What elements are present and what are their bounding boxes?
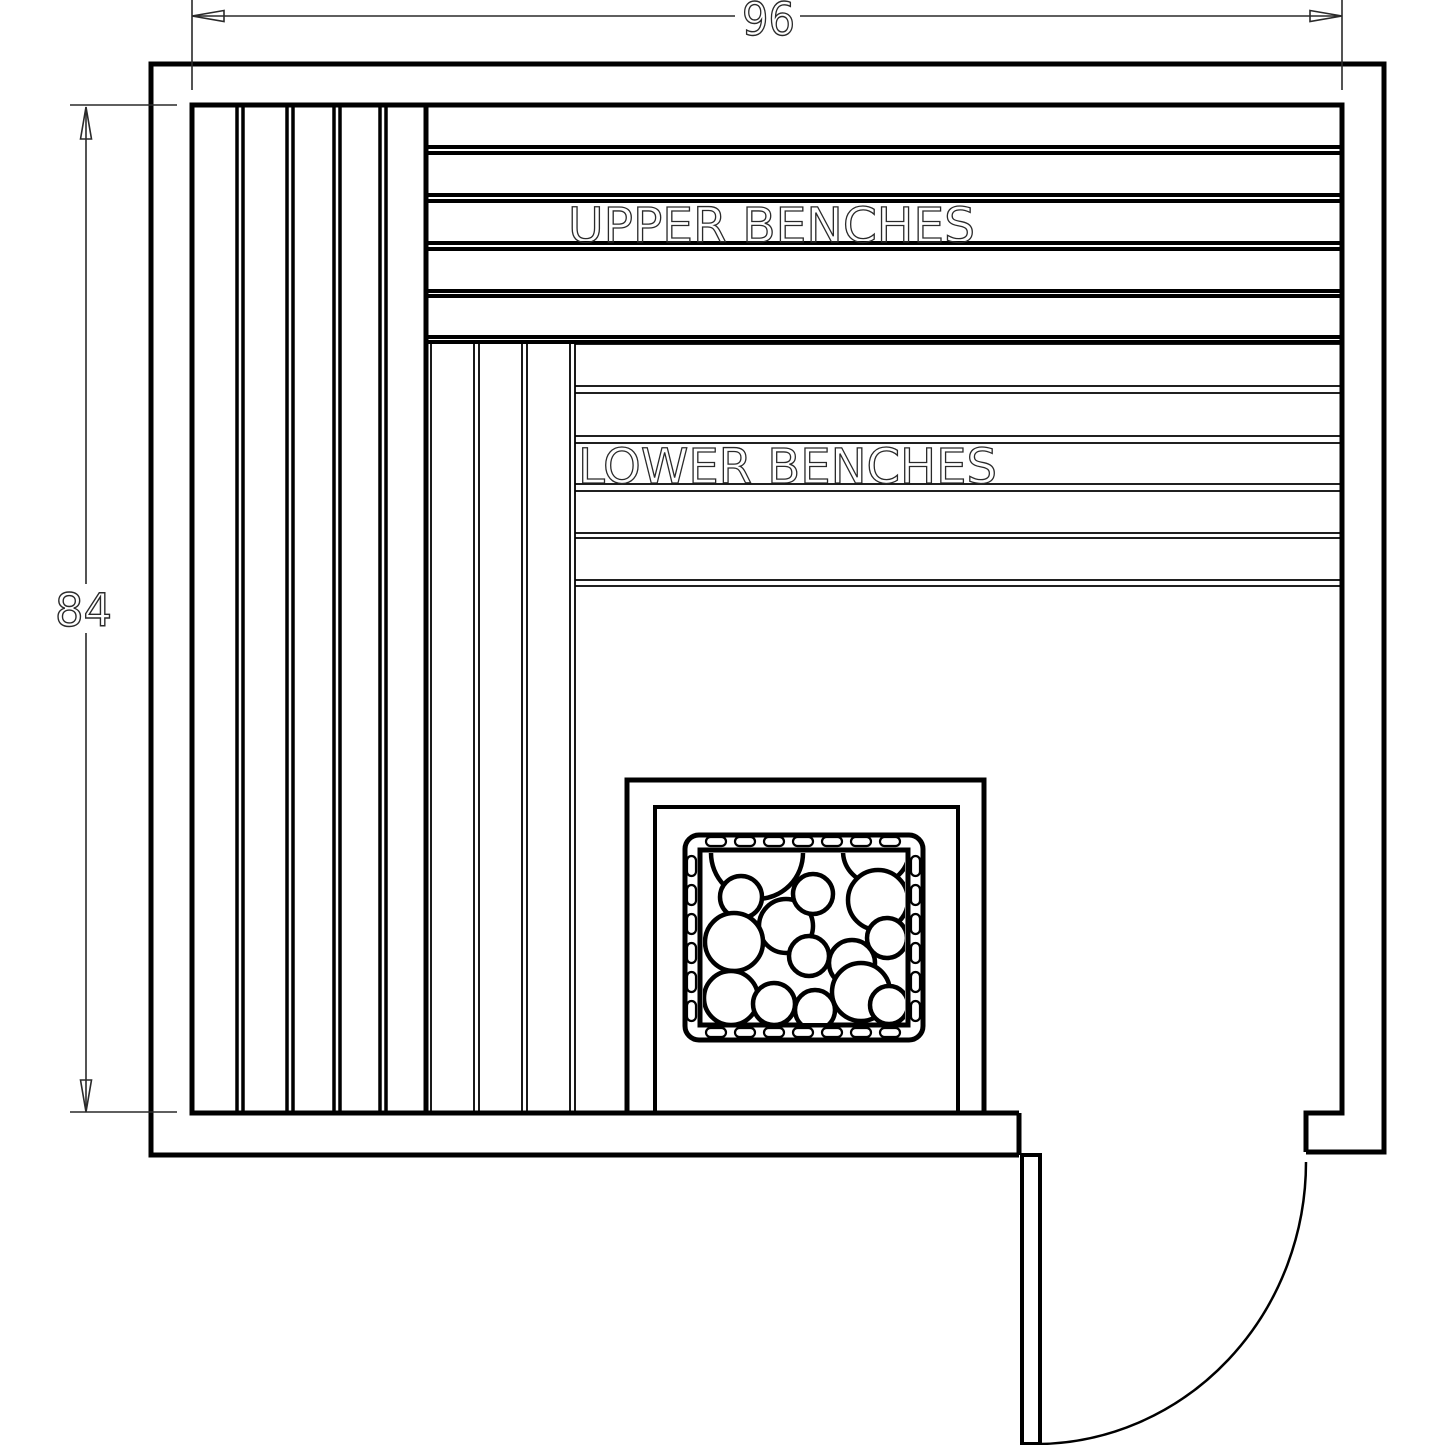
floor-plan-canvas: UPPER BENCHES LOWER BENCHES xyxy=(0,0,1445,1445)
sauna-floor-plan: UPPER BENCHES LOWER BENCHES xyxy=(0,0,1445,1445)
height-dimension-value: 84 xyxy=(55,584,112,637)
lower-benches-label: LOWER BENCHES xyxy=(578,439,997,495)
door-leaf xyxy=(1022,1155,1040,1444)
upper-benches-label: UPPER BENCHES xyxy=(568,198,975,254)
width-dimension-value: 96 xyxy=(742,0,795,46)
